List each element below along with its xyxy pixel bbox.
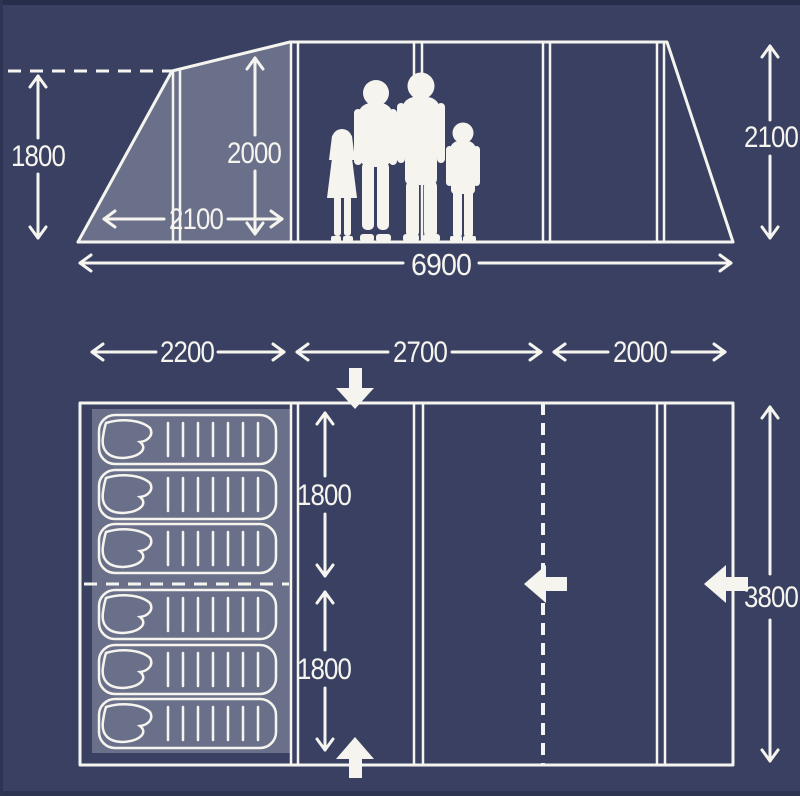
dim-label-front-height: 1800: [11, 140, 65, 173]
rear-door-arrow-up-icon: [336, 737, 374, 778]
bedroom-shaded-area: [92, 409, 290, 753]
dim-label-rear-height: 2100: [744, 121, 798, 154]
dim-label-porch-depth: 2100: [169, 203, 223, 236]
side-door-arrow-left-icon: [704, 565, 748, 603]
dim-front-width: 2200: [92, 336, 284, 369]
family-silhouette: [327, 73, 480, 243]
woman-silhouette: [354, 80, 397, 242]
bottom-edge-strip: [0, 791, 800, 796]
girl-silhouette: [327, 129, 357, 242]
dim-label-front-width: 2200: [160, 336, 214, 369]
dim-label-total-length: 6900: [411, 247, 472, 282]
dim-rear-width: 2000: [554, 336, 725, 369]
dim-rear-height: 2100: [744, 46, 798, 238]
dim-total-length: 6900: [80, 247, 731, 282]
dim-bedroom-depth-top: 1800: [297, 413, 351, 576]
diagram-svg: 1800 2000 2100 2100 6900: [0, 0, 800, 796]
side-view: 1800 2000 2100 2100 6900: [8, 42, 798, 282]
dim-label-rear-width: 2000: [613, 336, 667, 369]
dim-label-middle-width: 2700: [393, 336, 447, 369]
boy-silhouette: [446, 123, 480, 243]
dim-total-width: 3800: [744, 407, 798, 761]
dim-middle-width: 2700: [297, 336, 541, 369]
divider-door-arrow-left-icon: [524, 565, 567, 603]
dim-front-height: 1800: [11, 76, 65, 238]
dim-label-bedroom-depth-top: 1800: [297, 479, 351, 512]
dim-label-inner-height: 2000: [227, 137, 281, 170]
left-edge-strip: [0, 0, 3, 796]
floor-plan: 1800 1800 3800: [80, 368, 798, 778]
tent-dimensions-diagram: 1800 2000 2100 2100 6900: [0, 0, 800, 796]
dim-label-bedroom-depth-bottom: 1800: [297, 653, 351, 686]
dim-label-total-width: 3800: [744, 581, 798, 614]
top-edge-strip: [0, 0, 800, 5]
plan-width-dimensions: 2200 2700 2000: [92, 336, 725, 369]
dim-bedroom-depth-bottom: 1800: [297, 592, 351, 750]
